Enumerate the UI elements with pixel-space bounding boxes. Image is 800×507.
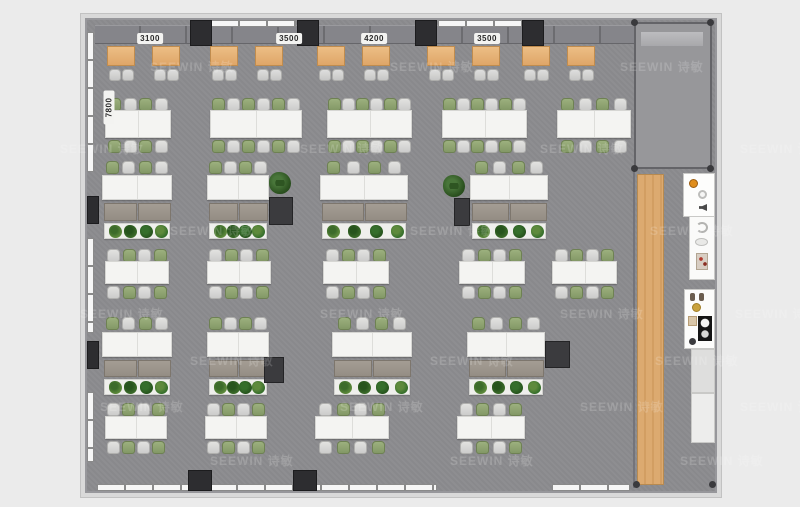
watermark-text: SEEWIN 诗敏 (560, 305, 644, 322)
watermark-text: SEEWIN 诗敏 (650, 222, 734, 239)
watermark-text: SEEWIN 诗敏 (60, 140, 144, 157)
watermark-text: SEEWIN 诗敏 (410, 222, 494, 239)
watermark-text: SEEWIN 诗敏 (620, 58, 704, 75)
watermark-text: SEEWIN 诗敏 (580, 398, 664, 415)
watermark-text: SEEWIN 诗敏 (430, 352, 514, 369)
watermark-text: SEEWIN 诗敏 (190, 352, 274, 369)
watermark-text: SEEWIN 诗敏 (100, 398, 184, 415)
watermark-text: SEEWIN 诗敏 (80, 305, 164, 322)
watermark-text: SEEWIN 诗敏 (740, 398, 800, 415)
watermark-text: SEEWIN 诗敏 (340, 398, 424, 415)
watermark-text: SEEWIN 诗敏 (680, 452, 764, 469)
floorplan-canvas: 31003500420035007800 SEEWIN 诗敏SEEWIN 诗敏S… (0, 0, 800, 507)
watermark-text: SEEWIN 诗敏 (450, 452, 534, 469)
watermark-text: SEEWIN 诗敏 (655, 352, 739, 369)
watermark-text: SEEWIN 诗敏 (735, 305, 800, 322)
watermark-text: SEEWIN 诗敏 (320, 305, 404, 322)
watermark-text: SEEWIN 诗敏 (740, 140, 800, 157)
watermark-layer: SEEWIN 诗敏SEEWIN 诗敏SEEWIN 诗敏SEEWIN 诗敏SEEW… (0, 0, 800, 507)
watermark-text: SEEWIN 诗敏 (390, 58, 474, 75)
watermark-text: SEEWIN 诗敏 (300, 140, 384, 157)
watermark-text: SEEWIN 诗敏 (170, 222, 254, 239)
watermark-text: SEEWIN 诗敏 (540, 140, 624, 157)
watermark-text: SEEWIN 诗敏 (150, 58, 234, 75)
watermark-text: SEEWIN 诗敏 (210, 452, 294, 469)
